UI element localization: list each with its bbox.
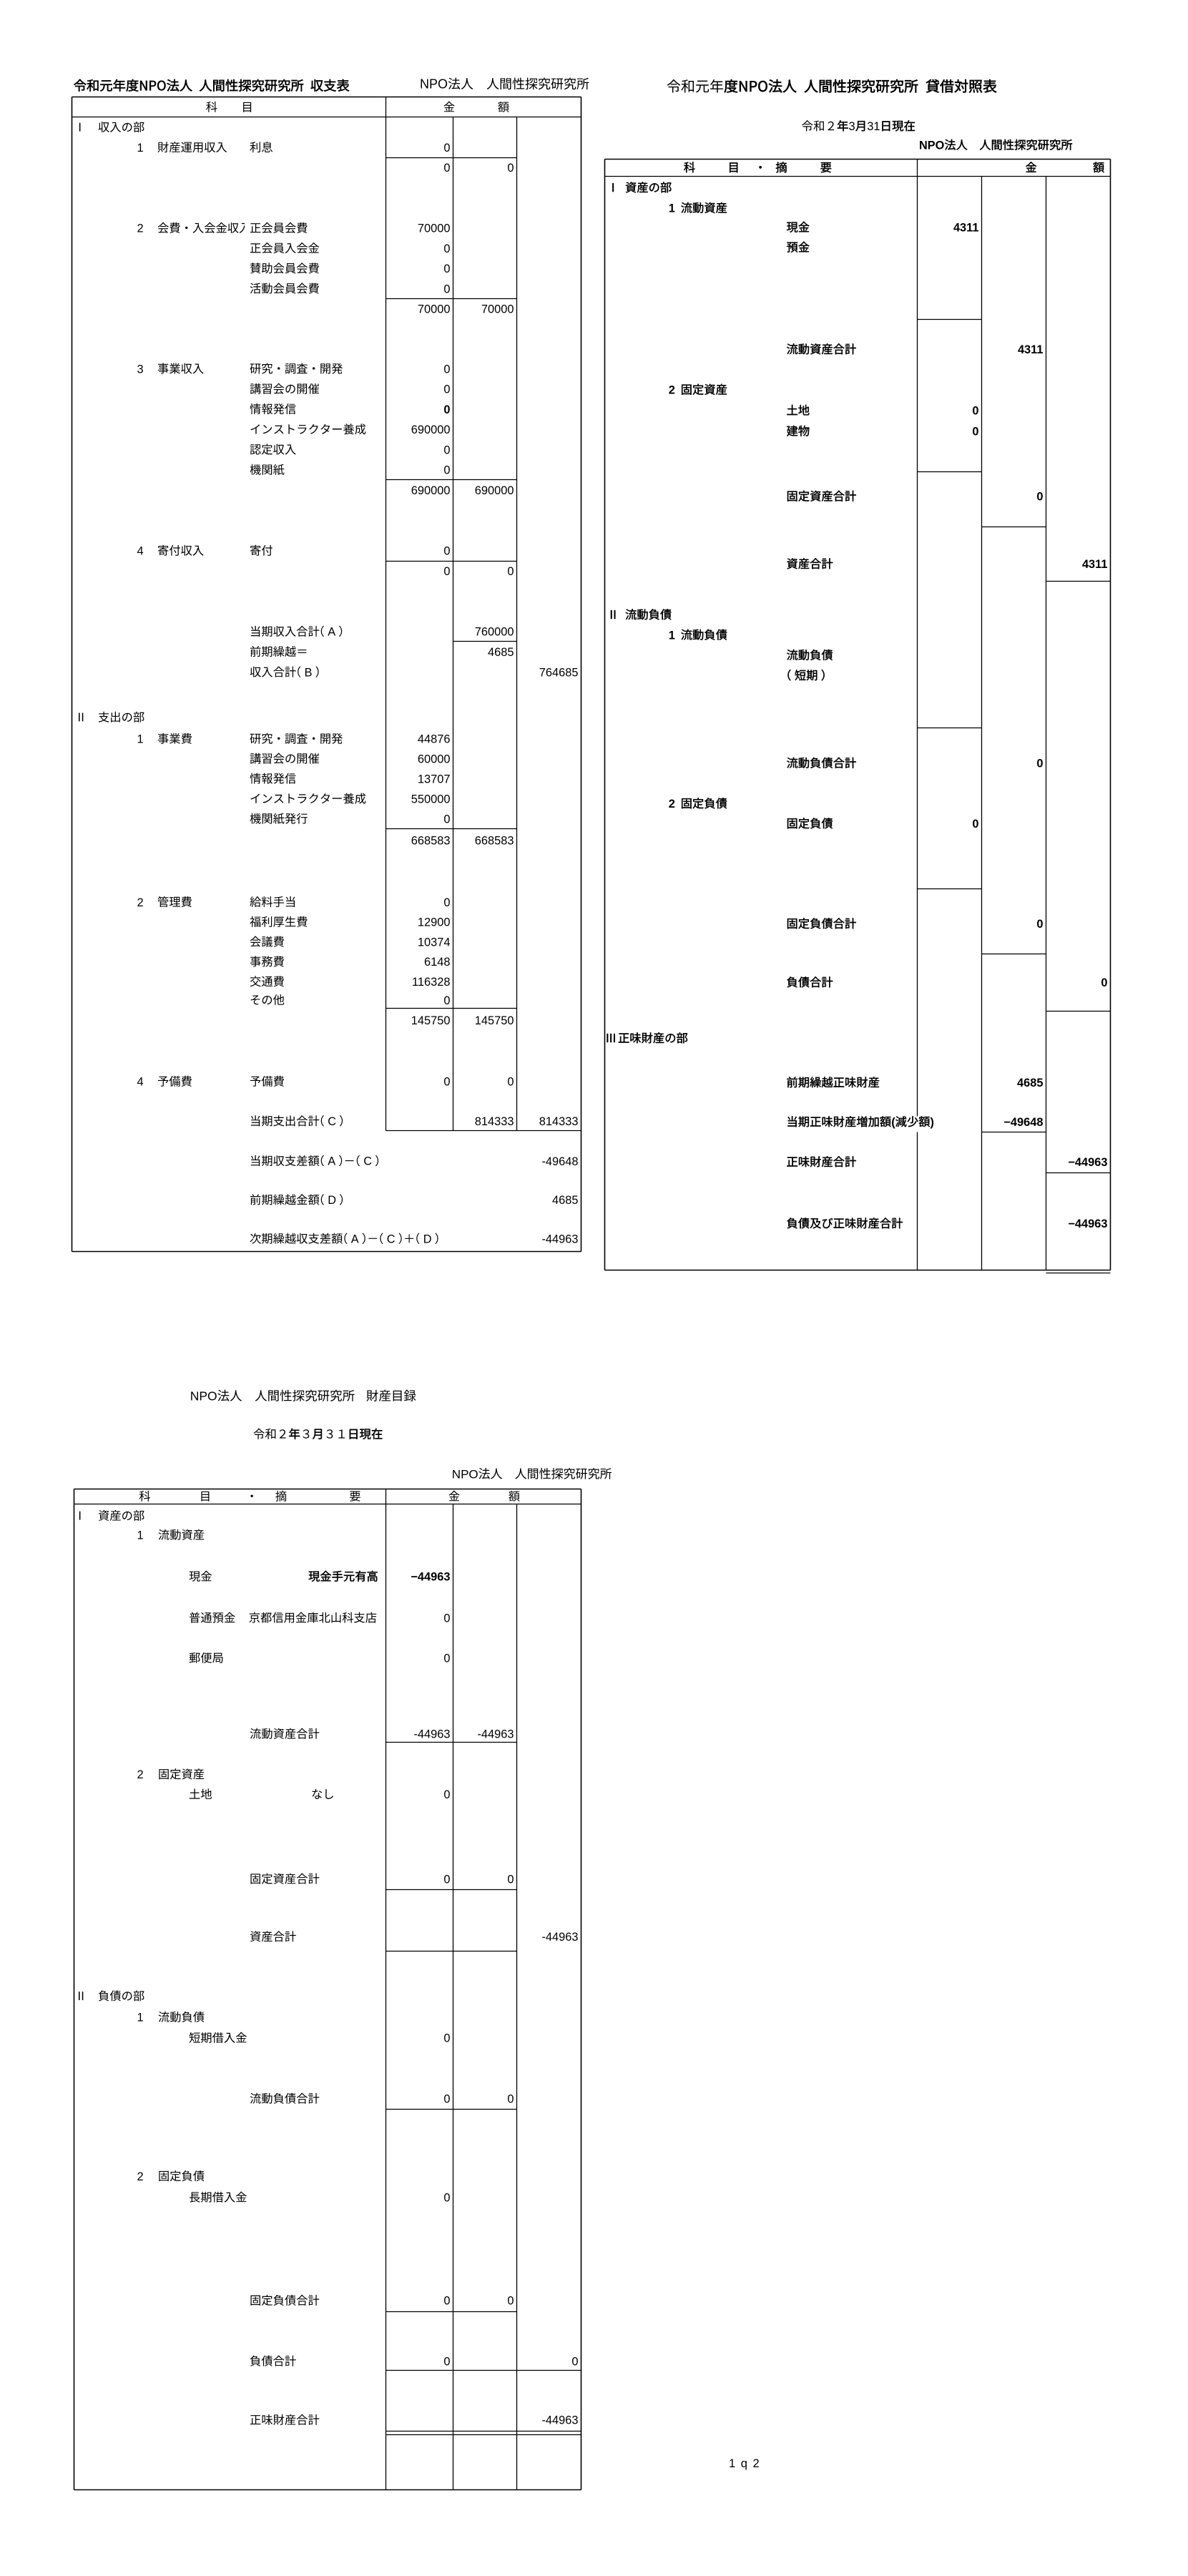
svg-text:-44963: -44963 [541, 1233, 578, 1246]
svg-text:D: D [328, 1194, 336, 1207]
svg-text:0: 0 [1101, 976, 1107, 989]
svg-text:1: 1 [137, 142, 144, 155]
svg-text:A: A [328, 1155, 335, 1168]
svg-text:1: 1 [137, 2012, 144, 2024]
svg-text:0: 0 [443, 1612, 450, 1625]
svg-text:A: A [328, 626, 335, 639]
svg-text:−49648: −49648 [1003, 1116, 1043, 1129]
svg-text:0: 0 [443, 444, 450, 456]
svg-text:814333: 814333 [475, 1115, 514, 1128]
svg-text:0: 0 [443, 142, 450, 155]
svg-text:−44963: −44963 [1068, 1218, 1107, 1230]
svg-text:6148: 6148 [424, 956, 450, 969]
svg-text:B: B [305, 666, 313, 679]
svg-text:690000: 690000 [475, 484, 514, 497]
svg-text:-44963: -44963 [541, 1931, 578, 1944]
svg-text:0: 0 [443, 283, 450, 295]
svg-text:2: 2 [669, 798, 675, 810]
svg-text:0: 0 [507, 565, 514, 578]
svg-text:−44963: −44963 [1068, 1156, 1107, 1169]
svg-text:NPO: NPO [420, 77, 448, 92]
svg-text:690000: 690000 [411, 423, 451, 436]
svg-text:1: 1 [669, 629, 675, 642]
svg-text:NPO: NPO [452, 1467, 478, 1481]
svg-text:NPO: NPO [919, 139, 944, 152]
svg-text:-44963: -44963 [541, 2414, 578, 2427]
svg-text:0: 0 [1036, 758, 1043, 770]
svg-text:0: 0 [443, 565, 450, 578]
svg-text:70000: 70000 [418, 303, 451, 316]
svg-text:1 q 2: 1 q 2 [729, 2457, 760, 2470]
svg-text:0: 0 [443, 2032, 450, 2045]
svg-text:4: 4 [137, 1076, 144, 1089]
svg-text:0: 0 [507, 1076, 514, 1089]
svg-text:550000: 550000 [411, 793, 451, 805]
svg-text:31: 31 [867, 120, 880, 133]
svg-text:0: 0 [972, 426, 978, 439]
svg-text:44876: 44876 [418, 733, 451, 746]
svg-text:0: 0 [972, 818, 978, 831]
svg-text:0: 0 [1036, 918, 1043, 931]
svg-text:−44963: −44963 [411, 1571, 450, 1584]
svg-text:0: 0 [443, 363, 450, 376]
svg-text:0: 0 [443, 1873, 450, 1886]
svg-text:0: 0 [507, 1873, 514, 1886]
svg-text:D: D [423, 1233, 432, 1245]
svg-text:C: C [328, 1115, 336, 1128]
svg-text:668583: 668583 [411, 835, 451, 848]
svg-text:0: 0 [443, 263, 450, 275]
svg-text:0: 0 [443, 2192, 450, 2205]
svg-text:0: 0 [443, 994, 450, 1007]
svg-text:-49648: -49648 [541, 1155, 578, 1168]
svg-text:4: 4 [137, 545, 144, 558]
svg-text:1: 1 [669, 202, 675, 215]
svg-text:1: 1 [137, 1529, 144, 1542]
svg-text:760000: 760000 [475, 626, 514, 639]
svg-text:4685: 4685 [552, 1194, 578, 1207]
svg-text:116328: 116328 [412, 976, 450, 989]
svg-text:C: C [387, 1233, 396, 1245]
svg-text:(: ( [891, 1116, 895, 1129]
svg-text:690000: 690000 [411, 484, 451, 497]
svg-text:-44963: -44963 [413, 1728, 450, 1741]
svg-text:0: 0 [443, 2295, 450, 2308]
svg-text:0: 0 [507, 162, 514, 175]
svg-text:0: 0 [443, 896, 450, 909]
svg-text:4311: 4311 [953, 222, 979, 235]
svg-text:-44963: -44963 [477, 1728, 514, 1741]
svg-text:2: 2 [137, 222, 144, 235]
svg-text:0: 0 [443, 403, 450, 416]
svg-text:): ) [931, 1116, 934, 1129]
svg-text:C: C [363, 1155, 372, 1168]
svg-text:2: 2 [137, 896, 144, 909]
svg-text:4311: 4311 [1018, 343, 1044, 356]
svg-text:0: 0 [507, 2093, 514, 2106]
svg-text:1: 1 [137, 733, 144, 746]
svg-text:4311: 4311 [1082, 558, 1108, 571]
svg-text:0: 0 [443, 545, 450, 558]
svg-text:0: 0 [443, 464, 450, 477]
svg-text:764685: 764685 [539, 666, 579, 679]
svg-text:0: 0 [571, 2356, 578, 2369]
svg-text:4685: 4685 [1017, 1077, 1043, 1089]
svg-text:0: 0 [443, 243, 450, 255]
svg-text:13707: 13707 [418, 773, 451, 785]
svg-text:0: 0 [443, 1076, 450, 1089]
svg-text:0: 0 [443, 1652, 450, 1665]
svg-text:0: 0 [507, 2295, 514, 2308]
svg-text:2: 2 [669, 384, 675, 397]
svg-text:A: A [351, 1233, 359, 1245]
svg-text:3: 3 [849, 120, 855, 133]
svg-text:0: 0 [443, 383, 450, 396]
svg-text:668583: 668583 [475, 835, 514, 848]
svg-text:NPO: NPO [190, 1389, 217, 1404]
svg-text:3: 3 [137, 363, 144, 376]
svg-text:2: 2 [137, 2170, 144, 2183]
svg-text:0: 0 [972, 405, 978, 418]
svg-text:70000: 70000 [418, 222, 451, 235]
svg-text:4685: 4685 [488, 646, 514, 659]
svg-text:0: 0 [1036, 491, 1043, 504]
svg-text:145750: 145750 [475, 1014, 514, 1027]
svg-text:0: 0 [443, 813, 450, 826]
svg-text:145750: 145750 [411, 1014, 451, 1027]
svg-text:0: 0 [443, 162, 450, 175]
svg-text:10374: 10374 [418, 936, 451, 949]
svg-text:70000: 70000 [481, 303, 514, 316]
svg-text:60000: 60000 [418, 753, 451, 765]
svg-text:814333: 814333 [539, 1115, 579, 1128]
svg-text:0: 0 [443, 2356, 450, 2369]
svg-text:0: 0 [443, 1788, 450, 1801]
svg-text:2: 2 [137, 1768, 144, 1781]
svg-text:0: 0 [443, 2093, 450, 2106]
svg-text:12900: 12900 [418, 916, 451, 929]
